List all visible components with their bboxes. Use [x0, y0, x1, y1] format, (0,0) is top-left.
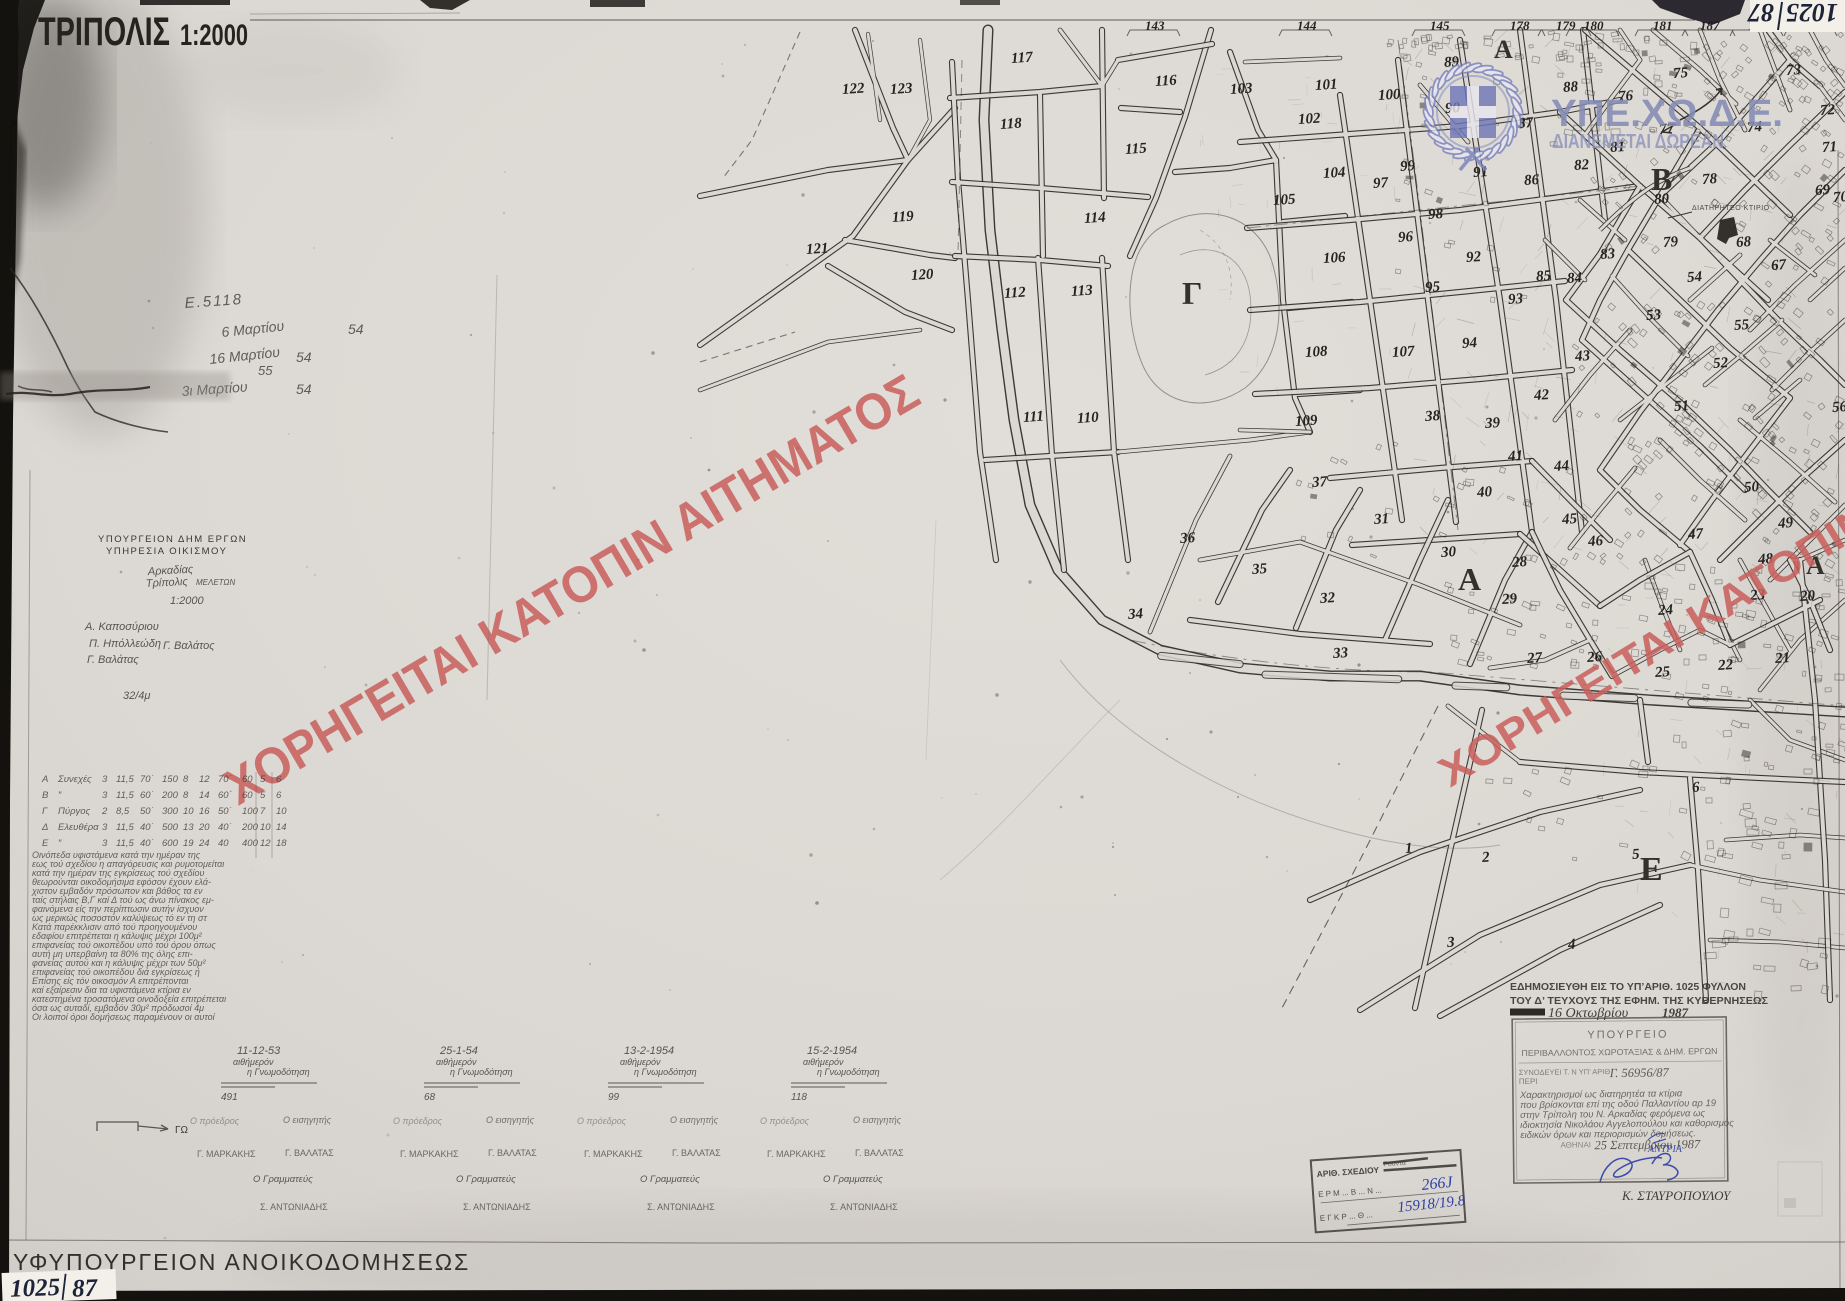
svg-text:12: 12 [199, 774, 210, 785]
svg-text:3: 3 [102, 774, 108, 785]
svg-text:25-1-54: 25-1-54 [439, 1045, 478, 1057]
svg-text:116: 116 [1155, 72, 1178, 90]
svg-text:Σ. ΑΝΤΩΝΙΑΔΗΣ: Σ. ΑΝΤΩΝΙΑΔΗΣ [463, 1202, 531, 1212]
svg-text:Γ. ΒΑΛΑΤΑΣ: Γ. ΒΑΛΑΤΑΣ [285, 1148, 334, 1158]
svg-text:85: 85 [1536, 268, 1553, 285]
svg-text:7: 7 [260, 806, 266, 817]
svg-text:46: 46 [1587, 533, 1605, 550]
svg-text:37: 37 [1311, 474, 1329, 491]
svg-text:78: 78 [1702, 171, 1719, 188]
svg-text:107: 107 [1392, 343, 1416, 361]
svg-text:70: 70 [1833, 189, 1845, 206]
svg-text:69: 69 [1815, 182, 1832, 199]
svg-text:η Γνωμοδότηση: η Γνωμοδότηση [247, 1067, 310, 1077]
svg-text:Ο Γραμματεύς: Ο Γραμματεύς [253, 1174, 313, 1185]
svg-text:105: 105 [1273, 191, 1297, 209]
svg-text:1025: 1025 [1786, 0, 1838, 27]
svg-text:13-2-1954: 13-2-1954 [624, 1045, 674, 1057]
svg-text:ΥΠΟΥΡΓΕΙΟ: ΥΠΟΥΡΓΕΙΟ [1587, 1028, 1668, 1041]
svg-text:32/4μ: 32/4μ [123, 690, 150, 702]
svg-text:1: 1 [1405, 840, 1414, 856]
svg-text:50˙: 50˙ [218, 806, 232, 817]
svg-text:Α: Α [41, 774, 48, 785]
svg-text:11-12-53: 11-12-53 [237, 1045, 281, 1057]
svg-text:Γ. Βαλάτος: Γ. Βαλάτος [163, 640, 215, 652]
svg-text:3: 3 [102, 822, 108, 833]
svg-text:Ο εισηγητής: Ο εισηγητής [670, 1115, 719, 1125]
svg-text:99: 99 [608, 1092, 620, 1103]
svg-text:8,5: 8,5 [116, 806, 130, 817]
svg-text:35: 35 [1251, 561, 1269, 578]
svg-text:28: 28 [1511, 554, 1529, 571]
svg-text:93: 93 [1508, 291, 1525, 308]
svg-text:32: 32 [1319, 590, 1337, 607]
svg-text:Ο πρόεδρος: Ο πρόεδρος [190, 1116, 240, 1126]
svg-text:Π. Ηπόλλεώδη: Π. Ηπόλλεώδη [89, 638, 161, 650]
svg-text:95: 95 [1425, 279, 1442, 296]
svg-text:117: 117 [1011, 49, 1034, 67]
svg-text:40˙: 40˙ [218, 822, 232, 833]
svg-text:266J: 266J [1421, 1174, 1455, 1194]
svg-text:98: 98 [1428, 206, 1445, 223]
svg-text:60: 60 [242, 790, 253, 801]
svg-text:60˙: 60˙ [218, 790, 232, 801]
svg-text:E: E [1640, 851, 1663, 888]
svg-text:55: 55 [1734, 317, 1751, 334]
svg-text:A: A [1494, 35, 1513, 64]
svg-text:Πύργος: Πύργος [58, 806, 91, 817]
svg-text:Γ. Βαλάτας: Γ. Βαλάτας [87, 654, 139, 666]
svg-text:101: 101 [1315, 76, 1339, 94]
svg-text:106: 106 [1323, 249, 1347, 267]
svg-text:40˙: 40˙ [140, 838, 154, 849]
svg-text:200: 200 [161, 790, 179, 801]
svg-text:Ελευθέρα: Ελευθέρα [58, 822, 99, 833]
svg-text:Οι λοιποί όροι δομήσεως παραμέ: Οι λοιποί όροι δομήσεως παραμένουν οι αυ… [32, 1012, 216, 1022]
svg-text:13: 13 [183, 822, 194, 833]
svg-text:70˙: 70˙ [140, 774, 154, 785]
svg-text:2: 2 [1481, 849, 1491, 866]
svg-text:24: 24 [198, 838, 210, 849]
svg-text:50: 50 [1744, 479, 1761, 496]
svg-text:44: 44 [1553, 458, 1571, 475]
svg-text:34: 34 [1127, 606, 1145, 623]
svg-text:20: 20 [198, 822, 210, 833]
svg-text:η Γνωμοδότηση: η Γνωμοδότηση [450, 1067, 513, 1077]
svg-text:87: 87 [72, 1275, 99, 1301]
svg-text:Ο Γραμματεύς: Ο Γραμματεύς [640, 1174, 700, 1185]
svg-text:16: 16 [199, 806, 210, 817]
svg-text:33: 33 [1332, 645, 1350, 662]
svg-text:ΠΕΡΙ: ΠΕΡΙ [1519, 1077, 1538, 1086]
svg-text:η Γνωμοδότηση: η Γνωμοδότηση [817, 1067, 880, 1077]
svg-text:51: 51 [1674, 398, 1690, 415]
svg-text:Συνεχές: Συνεχές [57, 774, 92, 785]
svg-text:121: 121 [806, 240, 830, 258]
svg-text:10: 10 [183, 806, 194, 817]
svg-text:54: 54 [348, 321, 364, 337]
svg-text:83: 83 [1600, 246, 1617, 263]
svg-text:Β: Β [42, 790, 49, 801]
svg-text:54: 54 [296, 381, 312, 397]
svg-text:2: 2 [101, 806, 108, 817]
svg-text:Γ. ΒΑΛΑΤΑΣ: Γ. ΒΑΛΑΤΑΣ [672, 1148, 721, 1158]
svg-text:49: 49 [1777, 515, 1795, 532]
svg-text:11,5: 11,5 [116, 838, 135, 849]
svg-text:60˙: 60˙ [140, 790, 154, 801]
svg-text:10: 10 [260, 822, 271, 833]
svg-text:103: 103 [1230, 80, 1254, 98]
svg-text:36: 36 [1179, 530, 1197, 547]
svg-text:29: 29 [1501, 591, 1519, 608]
svg-text:ΔΙΑΝΕΜΕΤΑΙ ΔΩΡΕΑΝ: ΔΙΑΝΕΜΕΤΑΙ ΔΩΡΕΑΝ [1552, 131, 1724, 153]
svg-text:11,5: 11,5 [116, 790, 135, 801]
svg-text:Ο εισηγητής: Ο εισηγητής [853, 1115, 902, 1125]
svg-text:70˙: 70˙ [218, 774, 232, 785]
svg-text:79: 79 [1663, 234, 1680, 251]
svg-text:Δ: Δ [41, 822, 48, 833]
svg-text:11,5: 11,5 [116, 774, 135, 785]
svg-text:ΓΩ: ΓΩ [175, 1125, 189, 1136]
svg-text:102: 102 [1298, 110, 1322, 128]
svg-text:72: 72 [1820, 102, 1837, 119]
svg-text:Α. Καποσύριου: Α. Καποσύριου [84, 621, 159, 633]
svg-text:8: 8 [183, 774, 189, 785]
svg-text:Γ. ΜΑΡΚΑΚΗΣ: Γ. ΜΑΡΚΑΚΗΣ [767, 1149, 826, 1159]
svg-text:41: 41 [1507, 448, 1524, 465]
svg-text:84: 84 [1567, 270, 1584, 287]
svg-text:ΥΠΗΡΕΣΙΑ ΟΙΚΙΣΜΟΥ: ΥΠΗΡΕΣΙΑ ΟΙΚΙΣΜΟΥ [106, 546, 227, 557]
svg-text:Ο εισηγητής: Ο εισηγητής [283, 1115, 332, 1125]
svg-text:31: 31 [1373, 511, 1390, 528]
svg-text:115: 115 [1125, 140, 1148, 158]
svg-text:3: 3 [102, 838, 108, 849]
svg-text:Κ. ΣΤΑΥΡΟΠΟΥΛΟΥ: Κ. ΣΤΑΥΡΟΠΟΥΛΟΥ [1621, 1188, 1732, 1203]
svg-text:54: 54 [296, 349, 312, 365]
svg-text:8: 8 [183, 790, 189, 801]
svg-text:118: 118 [1000, 115, 1023, 133]
svg-text:1:2000: 1:2000 [170, 595, 205, 607]
svg-text:38: 38 [1424, 408, 1442, 425]
svg-text:αιθήμερόν: αιθήμερόν [620, 1057, 661, 1067]
svg-text:75: 75 [1673, 65, 1690, 82]
svg-text:ΤΡΙΠΟΛΙΣ: ΤΡΙΠΟΛΙΣ [38, 10, 170, 54]
svg-text:Ο πρόεδρος: Ο πρόεδρος [393, 1116, 443, 1126]
svg-text:87: 87 [1747, 0, 1774, 27]
svg-text:112: 112 [1004, 284, 1027, 302]
svg-text:αιθήμερόν: αιθήμερόν [233, 1057, 274, 1067]
svg-text:118: 118 [791, 1092, 807, 1103]
svg-text:10: 10 [276, 806, 287, 817]
svg-text:100: 100 [1378, 86, 1402, 104]
svg-text:500: 500 [162, 822, 179, 833]
svg-text:Σ. ΑΝΤΩΝΙΑΔΗΣ: Σ. ΑΝΤΩΝΙΑΔΗΣ [260, 1202, 328, 1212]
svg-text:ΠΕΡΙΒΑΛΛΟΝΤΟΣ ΧΩΡΟΤΑΞΙΑΣ &: ΠΕΡΙΒΑΛΛΟΝΤΟΣ ΧΩΡΟΤΑΞΙΑΣ & ΔΗΜ. ΕΡΓΩΝ [1521, 1046, 1717, 1058]
svg-text:Σ. ΑΝΤΩΝΙΑΔΗΣ: Σ. ΑΝΤΩΝΙΑΔΗΣ [647, 1202, 715, 1212]
svg-text:ΔΙΑΤΗΡΗΤΕΟ ΚΤΙΡΙΟ: ΔΙΑΤΗΡΗΤΕΟ ΚΤΙΡΙΟ [1692, 205, 1770, 212]
svg-text:ΥΠΕ.ΧΩ.Δ.Ε.: ΥΠΕ.ΧΩ.Δ.Ε. [1551, 93, 1783, 135]
svg-text:Ο Γραμματεύς: Ο Γραμματεύς [823, 1174, 883, 1185]
svg-text:5: 5 [260, 790, 266, 801]
svg-text:67: 67 [1771, 257, 1788, 274]
svg-text:68: 68 [1736, 234, 1753, 251]
svg-text:6: 6 [276, 790, 282, 801]
svg-text:113: 113 [1071, 282, 1094, 300]
svg-text:39: 39 [1484, 415, 1502, 432]
svg-text:54: 54 [1687, 269, 1704, 286]
svg-text:Τρίπολις: Τρίπολις [146, 576, 189, 590]
svg-text:Ε: Ε [42, 838, 49, 849]
svg-text:600: 600 [162, 838, 179, 849]
svg-text:50˙: 50˙ [140, 806, 154, 817]
svg-text:Ο πρόεδρος: Ο πρόεδρος [760, 1116, 810, 1126]
svg-text:53: 53 [1646, 307, 1663, 324]
svg-text:6: 6 [276, 774, 282, 785]
svg-text:52: 52 [1713, 355, 1730, 372]
svg-text:110: 110 [1077, 409, 1100, 427]
svg-text:45: 45 [1561, 511, 1579, 528]
svg-text:96: 96 [1398, 229, 1415, 246]
svg-text:123: 123 [890, 80, 914, 98]
svg-text:αιθήμερόν: αιθήμερόν [803, 1057, 844, 1067]
svg-text:ΥΠΟΥΡΓΕΙΟΝ ΔΗΜ ΕΡΓΩΝ: ΥΠΟΥΡΓΕΙΟΝ ΔΗΜ ΕΡΓΩΝ [98, 534, 247, 545]
svg-text:Γ. 56956/87: Γ. 56956/87 [1609, 1065, 1670, 1080]
svg-text:40˙: 40˙ [140, 822, 154, 833]
svg-text:ΕΔΗΜΟΣΙΕΥΘΗ ΕΙΣ ΤΟ ΥΠ’ΑΡΙΘ. 10: ΕΔΗΜΟΣΙΕΥΘΗ ΕΙΣ ΤΟ ΥΠ’ΑΡΙΘ. 1025 ΦΥΛΛΟΝ [1510, 982, 1746, 993]
svg-text:Γ. ΜΑΡΚΑΚΗΣ: Γ. ΜΑΡΚΑΚΗΣ [400, 1149, 459, 1159]
svg-text:η Γνωμοδότηση: η Γνωμοδότηση [634, 1067, 697, 1077]
svg-text:12: 12 [260, 838, 271, 849]
svg-text:150: 150 [162, 774, 179, 785]
svg-text:71: 71 [1822, 139, 1838, 156]
svg-text:97: 97 [1373, 175, 1390, 192]
svg-text:40: 40 [218, 838, 229, 849]
svg-text:3: 3 [102, 790, 108, 801]
svg-text:491: 491 [221, 1092, 238, 1103]
svg-text:86: 86 [1524, 172, 1541, 189]
svg-text:15-2-1954: 15-2-1954 [807, 1045, 857, 1057]
svg-text:109: 109 [1295, 412, 1319, 430]
svg-text:20: 20 [1799, 588, 1817, 605]
svg-text:Ο Γραμματεύς: Ο Γραμματεύς [456, 1174, 516, 1185]
svg-text:122: 122 [842, 80, 866, 98]
svg-text:ΑΘΗΝΑΙ: ΑΘΗΝΑΙ [1560, 1140, 1591, 1149]
svg-text:82: 82 [1574, 157, 1591, 174]
svg-text:14: 14 [276, 822, 287, 833]
svg-text:21: 21 [1774, 650, 1791, 667]
svg-text:42: 42 [1533, 387, 1551, 404]
svg-text:ΑΝΤΡΙΑ: ΑΝΤΡΙΑ [1647, 1144, 1683, 1155]
svg-text:18: 18 [276, 838, 287, 849]
svg-text:11,5: 11,5 [116, 822, 135, 833]
svg-text:27: 27 [1526, 650, 1544, 667]
svg-text:Γ: Γ [42, 806, 48, 817]
svg-text:73: 73 [1786, 62, 1803, 79]
svg-text:Ο πρόεδρος: Ο πρόεδρος [577, 1116, 627, 1126]
svg-text:αιθήμερόν: αιθήμερόν [436, 1057, 477, 1067]
svg-text:19: 19 [183, 838, 194, 849]
svg-text:ΣΥΝΟΔΕΥΕΙ Τ. Ν ΥΠ’ ΑΡΙΘ: ΣΥΝΟΔΕΥΕΙ Τ. Ν ΥΠ’ ΑΡΙΘ [1519, 1067, 1611, 1077]
svg-text:Γ. ΜΑΡΚΑΚΗΣ: Γ. ΜΑΡΚΑΚΗΣ [197, 1149, 256, 1159]
svg-text:30: 30 [1440, 544, 1458, 561]
svg-text:55: 55 [258, 363, 273, 378]
svg-text:1025: 1025 [10, 1274, 61, 1301]
svg-text:94: 94 [1462, 335, 1479, 352]
svg-text:43: 43 [1574, 348, 1592, 365]
svg-text:92: 92 [1466, 249, 1483, 266]
svg-text:Γ: Γ [1182, 275, 1202, 311]
svg-text:Γ. ΜΑΡΚΑΚΗΣ: Γ. ΜΑΡΚΑΚΗΣ [584, 1149, 643, 1159]
svg-text:108: 108 [1305, 343, 1329, 361]
svg-text:114: 114 [1084, 209, 1107, 227]
svg-text:14: 14 [199, 790, 210, 801]
svg-text:120: 120 [911, 266, 935, 284]
svg-text:104: 104 [1323, 164, 1347, 182]
svg-text:119: 119 [892, 208, 915, 226]
svg-text:Σ. ΑΝΤΩΝΙΑΔΗΣ: Σ. ΑΝΤΩΝΙΑΔΗΣ [830, 1202, 898, 1212]
svg-text:Γ. ΒΑΛΑΤΑΣ: Γ. ΒΑΛΑΤΑΣ [488, 1148, 537, 1158]
svg-text:300: 300 [162, 806, 179, 817]
svg-text:Γ. ΒΑΛΑΤΑΣ: Γ. ΒΑΛΑΤΑΣ [855, 1148, 904, 1158]
svg-text:111: 111 [1023, 409, 1045, 426]
svg-text:4: 4 [1567, 936, 1577, 953]
svg-text:40: 40 [1476, 484, 1494, 501]
svg-text:47: 47 [1687, 526, 1705, 543]
svg-text:1:2000: 1:2000 [180, 19, 248, 52]
svg-text:3: 3 [1446, 934, 1456, 951]
svg-text:99: 99 [1400, 158, 1417, 175]
svg-text:B: B [1651, 161, 1672, 197]
svg-text:ΜΕΛΕΤΩΝ: ΜΕΛΕΤΩΝ [196, 578, 236, 587]
svg-text:A: A [1458, 561, 1481, 597]
svg-text:68: 68 [424, 1092, 436, 1103]
svg-text:5: 5 [260, 774, 266, 785]
svg-text:Ο εισηγητής: Ο εισηγητής [486, 1115, 535, 1125]
svg-text:60: 60 [242, 774, 253, 785]
svg-text:22: 22 [1717, 657, 1735, 674]
